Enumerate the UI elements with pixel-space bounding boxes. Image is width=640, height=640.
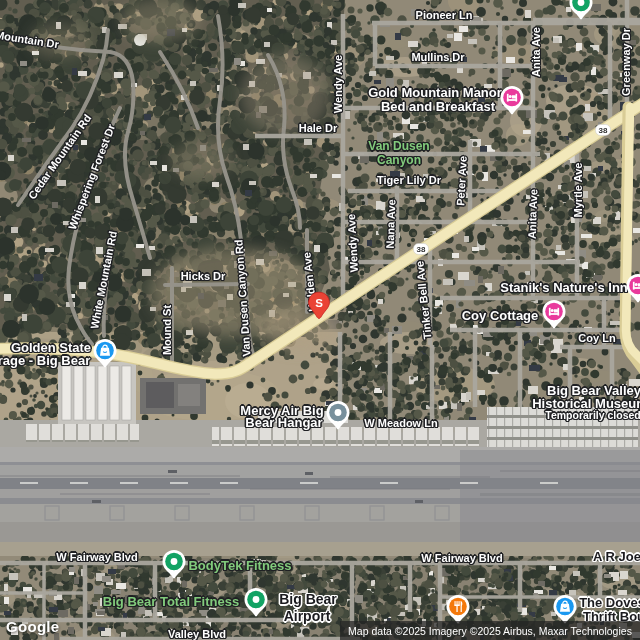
svg-text:38: 38 [599,126,608,135]
svg-text:S: S [315,297,323,309]
svg-text:38: 38 [417,245,426,254]
